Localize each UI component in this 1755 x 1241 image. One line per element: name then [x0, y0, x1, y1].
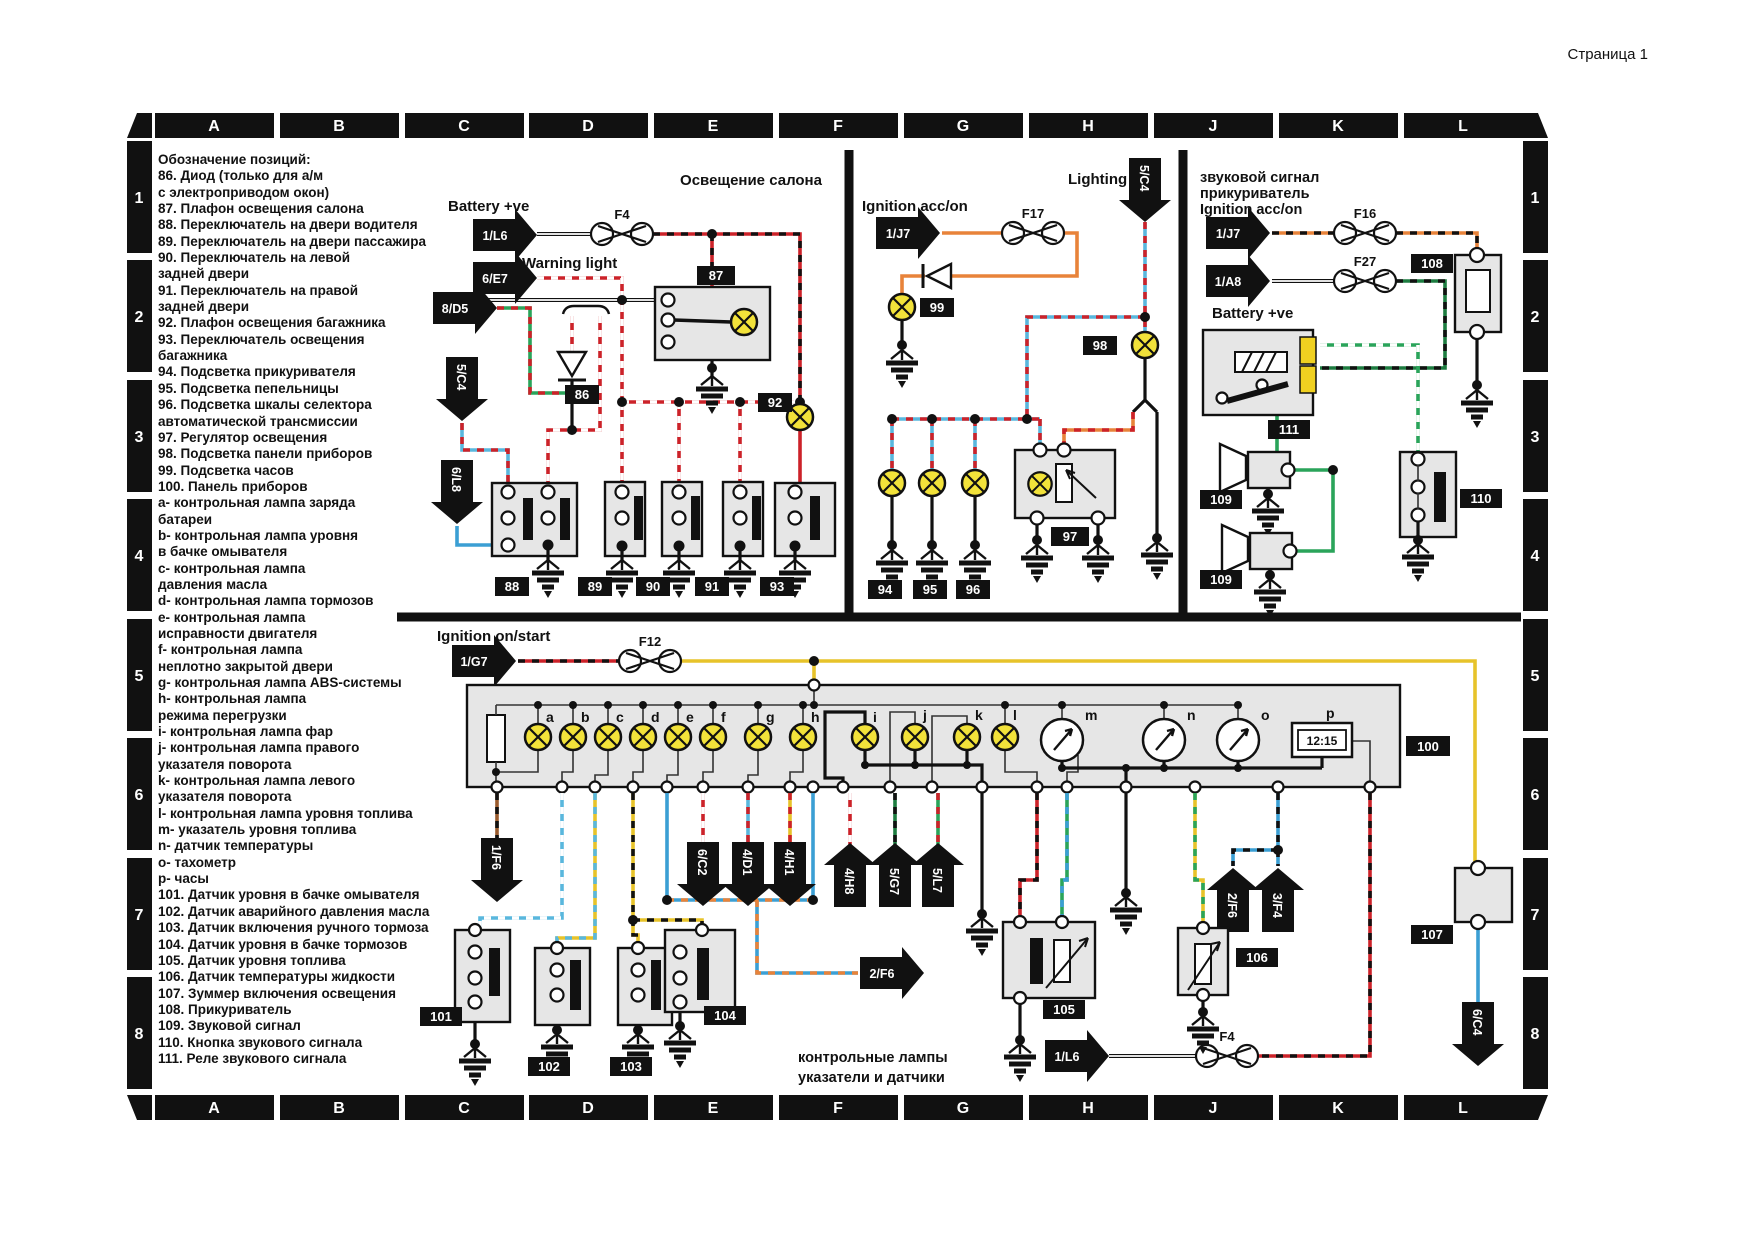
ground-87 [696, 376, 728, 414]
label-94: 94 [868, 580, 902, 599]
row-2r: 2 [1531, 309, 1540, 326]
gauge-n-temp [1143, 719, 1185, 761]
column-header-bottom: A B C D E F G H J K L [155, 1095, 1523, 1120]
lamp-f-door [700, 724, 726, 750]
col-j: J [1209, 118, 1218, 135]
label-95: 95 [913, 580, 947, 599]
fuse-f4-bottom-label: F4 [1219, 1029, 1235, 1044]
fuse-f27-label: F27 [1354, 254, 1376, 269]
col-b: B [333, 118, 345, 135]
ground-104 [664, 1030, 696, 1068]
ground-109a [1252, 498, 1284, 536]
clock-light-99 [889, 294, 915, 320]
label-96: 96 [956, 580, 990, 599]
label-110-text: 110 [1471, 491, 1492, 506]
ground-98 [1141, 542, 1173, 580]
row-header-right: 1 2 3 4 5 6 7 8 [1523, 141, 1548, 1089]
label-97-text: 97 [1063, 529, 1077, 544]
label-97: 97 [1051, 527, 1089, 546]
label-102-text: 102 [538, 1059, 560, 1074]
row-6r: 6 [1531, 787, 1540, 804]
ground-jk [966, 918, 998, 956]
lamp-k-turn-left [954, 724, 980, 750]
horn-relay-111 [1203, 330, 1316, 415]
col-h: H [1082, 118, 1094, 135]
wire-l-105 [1020, 793, 1037, 918]
ref-4h1-text: 4/H1 [782, 849, 796, 875]
ground-88 [532, 560, 564, 598]
wire-8d5 [497, 308, 566, 393]
fuse-f4-top [591, 223, 653, 245]
caption-line1: контрольные лампы [798, 1050, 948, 1066]
wire-horn-button [1320, 345, 1418, 452]
col-f2: F [833, 1100, 843, 1117]
label-104: 104 [704, 1006, 746, 1025]
label-110: 110 [1460, 489, 1502, 508]
ref-5c4-left-text: 5/C4 [454, 364, 468, 390]
row-8r: 8 [1531, 1026, 1540, 1043]
col-g2: G [957, 1100, 969, 1117]
lamp-c-oil [595, 724, 621, 750]
label-95-text: 95 [923, 582, 937, 597]
ref-arrow-5l7: 5/L7 [912, 843, 964, 907]
label-111: 111 [1268, 420, 1310, 439]
col-b2: B [333, 1100, 345, 1117]
ref-1j7-right-text: 1/J7 [1216, 227, 1240, 241]
lighter-light-94 [879, 470, 905, 496]
ref-arrow-1a8: 1/A8 [1206, 255, 1270, 307]
ground-101 [459, 1048, 491, 1086]
col-c2: C [458, 1100, 470, 1117]
ref-arrow-5g7: 5/G7 [869, 843, 921, 907]
label-89-text: 89 [588, 579, 602, 594]
panel-letter-c: c [616, 709, 624, 725]
clock-p: 12:15 [1292, 723, 1352, 757]
label-109a-text: 109 [1210, 492, 1232, 507]
ground-97b [1082, 545, 1114, 583]
label-90: 90 [636, 577, 670, 596]
label-88-text: 88 [505, 579, 519, 594]
col-a: A [208, 118, 220, 135]
label-99-text: 99 [930, 300, 944, 315]
col-f: F [833, 118, 843, 135]
lamp-b-washer [560, 724, 586, 750]
ground-105 [1004, 1044, 1036, 1082]
ref-6e7-text: 6/E7 [482, 272, 508, 286]
label-98: 98 [1083, 336, 1117, 355]
section-instrument-panel: Ignition on/start F12 1/G7 [420, 628, 1512, 1086]
label-101: 101 [420, 1007, 462, 1026]
ref-2f6-right-text: 2/F6 [869, 967, 894, 981]
ref-arrow-6l8: 6/L8 [431, 460, 483, 524]
ref-6l8-text: 6/L8 [449, 467, 463, 492]
panel-letter-l: l [1013, 707, 1017, 723]
label-109b: 109 [1200, 570, 1242, 589]
ref-arrow-5c4-left: 5/C4 [436, 357, 488, 421]
ref-1g7-text: 1/G7 [460, 655, 487, 669]
fuse-f16-label: F16 [1354, 206, 1376, 221]
buzzer-107 [1455, 861, 1512, 929]
label-98-text: 98 [1093, 338, 1107, 353]
col-c: C [458, 118, 470, 135]
ref-2f6-up-text: 2/F6 [1225, 893, 1239, 918]
label-104-text: 104 [714, 1008, 736, 1023]
label-107: 107 [1411, 925, 1453, 944]
row-header-left: 1 2 3 4 5 6 7 8 [127, 141, 152, 1089]
section-interior-lighting: Освещение салона Battery +ve Warning lig… [431, 172, 835, 598]
battery-right-label: Battery +ve [1212, 305, 1293, 322]
label-108: 108 [1411, 254, 1453, 273]
panel-letter-e: e [686, 709, 694, 725]
label-99: 99 [920, 298, 954, 317]
label-109b-text: 109 [1210, 572, 1232, 587]
fuse-f4-top-label: F4 [614, 207, 630, 222]
row-1: 1 [135, 190, 144, 207]
ref-arrow-4d1: 4/D1 [722, 842, 774, 906]
ref-6c2-text: 6/C2 [695, 849, 709, 875]
row-7: 7 [135, 907, 144, 924]
panel-light-98 [1132, 332, 1158, 358]
label-100: 100 [1406, 736, 1450, 756]
ground-gauges [1110, 897, 1142, 935]
label-103-text: 103 [620, 1059, 642, 1074]
instrument-panel-100: 12:15 a b c d e f g h i j k l m n o p [467, 680, 1400, 793]
ignition-acc-label: Ignition acc/on [862, 198, 968, 215]
ref-arrow-5c4-lighting: 5/C4 [1119, 158, 1171, 222]
label-102: 102 [528, 1057, 570, 1076]
col-j2: J [1209, 1100, 1218, 1117]
ground-99 [886, 350, 918, 388]
wire-jk-ground [966, 793, 998, 956]
lamp-d-brakes [630, 724, 656, 750]
diagram-canvas: A B C D E F G H J K L A B C D E F G H J … [0, 0, 1755, 1241]
label-92-text: 92 [768, 395, 782, 410]
ignition-on-label: Ignition on/start [437, 628, 550, 645]
label-94-text: 94 [878, 582, 893, 597]
lamp-e-engine [665, 724, 691, 750]
ref-5g7-text: 5/G7 [887, 868, 901, 895]
row-4: 4 [135, 548, 144, 565]
horn-title-2: прикуриватель [1200, 186, 1310, 202]
label-106-text: 106 [1246, 950, 1268, 965]
ref-5c4-light-text: 5/C4 [1137, 165, 1151, 191]
ref-4h8-text: 4/H8 [842, 868, 856, 894]
grounds-94-96 [876, 496, 991, 588]
ground-97a [1021, 545, 1053, 583]
label-111-text: 111 [1279, 422, 1299, 437]
row-5r: 5 [1531, 668, 1540, 685]
ref-arrow-6c4: 6/C4 [1452, 1002, 1504, 1066]
panel-letter-o: o [1261, 707, 1270, 723]
ref-arrow-4h1: 4/H1 [764, 842, 816, 906]
panel-letter-b: b [581, 709, 590, 725]
lighter-108 [1455, 248, 1501, 428]
label-89: 89 [578, 577, 612, 596]
label-91: 91 [695, 577, 729, 596]
horn-title-1: звуковой сигнал [1200, 170, 1319, 186]
ref-arrow-6c2: 6/C2 [677, 842, 729, 906]
label-103: 103 [610, 1057, 652, 1076]
dome-lamp [731, 309, 757, 335]
col-a2: A [208, 1100, 220, 1117]
section-panel-lighting: Ignition acc/on Lighting F17 1/J7 99 5/C… [862, 158, 1173, 599]
lamp-h-overload [790, 724, 816, 750]
rheostat-97 [1015, 444, 1115, 584]
row-3r: 3 [1531, 429, 1540, 446]
col-d2: D [582, 1100, 594, 1117]
fuse-f17-label: F17 [1022, 206, 1044, 221]
sensor-101 [455, 924, 510, 1086]
clock-time: 12:15 [1307, 734, 1338, 748]
ref-1l6-bottom-text: 1/L6 [1054, 1050, 1079, 1064]
row-5: 5 [135, 668, 144, 685]
panel-letter-f: f [721, 709, 726, 725]
ground-110 [1402, 544, 1434, 582]
fuse-f12 [619, 650, 681, 672]
lighting-label: Lighting [1068, 171, 1127, 188]
col-k: K [1332, 118, 1344, 135]
gauge-o-tach [1217, 719, 1259, 761]
col-l2: L [1458, 1100, 1468, 1117]
label-108-text: 108 [1421, 256, 1443, 271]
ref-arrow-3f4: 3/F4 [1252, 868, 1304, 932]
col-e: E [708, 118, 719, 135]
label-87: 87 [697, 266, 735, 285]
ref-arrow-2f6-right: 2/F6 [860, 947, 924, 999]
label-109a: 109 [1200, 490, 1242, 509]
ref-arrow-4h8: 4/H8 [824, 843, 876, 907]
selector-light-96 [962, 470, 988, 496]
row-8: 8 [135, 1026, 144, 1043]
row-3: 3 [135, 429, 144, 446]
lamp-j-turn-right [902, 724, 928, 750]
col-k2: K [1332, 1100, 1344, 1117]
label-86: 86 [565, 385, 599, 404]
ref-1f6-text: 1/F6 [489, 845, 503, 870]
col-l: L [1458, 118, 1468, 135]
fuse-f12-label: F12 [639, 634, 661, 649]
label-88: 88 [495, 577, 529, 596]
warning-light-label: Warning light [522, 255, 617, 272]
label-107-text: 107 [1421, 927, 1443, 942]
lamp-i-headlights [852, 724, 878, 750]
label-105: 105 [1043, 1000, 1085, 1019]
panel-letter-d: d [651, 709, 660, 725]
ref-arrow-2f6-up: 2/F6 [1207, 868, 1259, 932]
ref-1l6-top-text: 1/L6 [482, 229, 507, 243]
ref-arrow-1l6-top: 1/L6 [473, 209, 537, 261]
panel-letter-j: j [922, 707, 927, 723]
panel-letter-a: a [546, 709, 554, 725]
panel-letter-i: i [873, 709, 877, 725]
lamp-g-abs [745, 724, 771, 750]
wire-m-105 [1062, 793, 1067, 918]
label-86-text: 86 [575, 387, 589, 402]
label-106: 106 [1236, 948, 1278, 967]
wire-n-106 [1195, 793, 1203, 924]
dome-light-87 [655, 287, 770, 414]
ground-108 [1461, 390, 1493, 428]
fuse-f16 [1334, 222, 1396, 244]
column-header-top: A B C D E F G H J K L [155, 113, 1523, 138]
ref-5l7-text: 5/L7 [930, 868, 944, 893]
label-87-text: 87 [709, 268, 723, 283]
label-96-text: 96 [966, 582, 980, 597]
wiring-diagram-page: { "page": { "corner": "Страница 1" }, "g… [0, 0, 1755, 1241]
voltage-stabilizer [487, 715, 505, 762]
interior-title: Освещение салона [680, 172, 823, 189]
row-4r: 4 [1531, 548, 1540, 565]
sensor-102 [535, 942, 590, 1072]
panel-letter-k: k [975, 707, 983, 723]
ref-arrow-1f6: 1/F6 [471, 838, 523, 902]
caption-line2: указатели и датчики [798, 1070, 945, 1086]
col-e2: E [708, 1100, 719, 1117]
col-h2: H [1082, 1100, 1094, 1117]
ref-3f4-text: 3/F4 [1270, 893, 1284, 918]
ref-arrow-1l6-bottom: 1/L6 [1045, 1030, 1109, 1082]
ref-4d1-text: 4/D1 [740, 849, 754, 875]
lamp-l-fuel [992, 724, 1018, 750]
label-93: 93 [760, 577, 794, 596]
col-d: D [582, 118, 594, 135]
col-g: G [957, 118, 969, 135]
label-101-text: 101 [430, 1009, 452, 1024]
ashtray-light-95 [919, 470, 945, 496]
wire-o-tach [1233, 793, 1283, 866]
gauge-m-fuel [1041, 719, 1083, 761]
fuse-f27 [1334, 270, 1396, 292]
row-7r: 7 [1531, 907, 1540, 924]
diode-99 [923, 264, 951, 288]
panel-letter-n: n [1187, 707, 1196, 723]
ref-1j7-mid-text: 1/J7 [886, 227, 910, 241]
row-2: 2 [135, 309, 144, 326]
label-93-text: 93 [770, 579, 784, 594]
row-6: 6 [135, 787, 144, 804]
wire-gauge-ground [1110, 793, 1142, 935]
horn-button-110 [1400, 452, 1456, 582]
panel-letter-g: g [766, 709, 775, 725]
ref-1a8-text: 1/A8 [1215, 275, 1241, 289]
label-92: 92 [758, 393, 792, 412]
label-105-text: 105 [1053, 1002, 1075, 1017]
sensor-104 [664, 924, 735, 1068]
lamp-a-battery [525, 724, 551, 750]
panel-letter-p: p [1326, 705, 1335, 721]
ref-8d5-text: 8/D5 [442, 302, 468, 316]
fuse-f17 [1002, 222, 1064, 244]
ground-109b [1254, 579, 1286, 617]
ref-6c4-text: 6/C4 [1470, 1009, 1484, 1035]
row-1r: 1 [1531, 190, 1540, 207]
label-91-text: 91 [705, 579, 719, 594]
panel-letter-h: h [811, 709, 820, 725]
panel-letter-m: m [1085, 707, 1097, 723]
label-90-text: 90 [646, 579, 660, 594]
section-horn-lighter: звуковой сигнал прикуриватель Ignition a… [1200, 170, 1502, 617]
label-100-text: 100 [1417, 739, 1439, 754]
